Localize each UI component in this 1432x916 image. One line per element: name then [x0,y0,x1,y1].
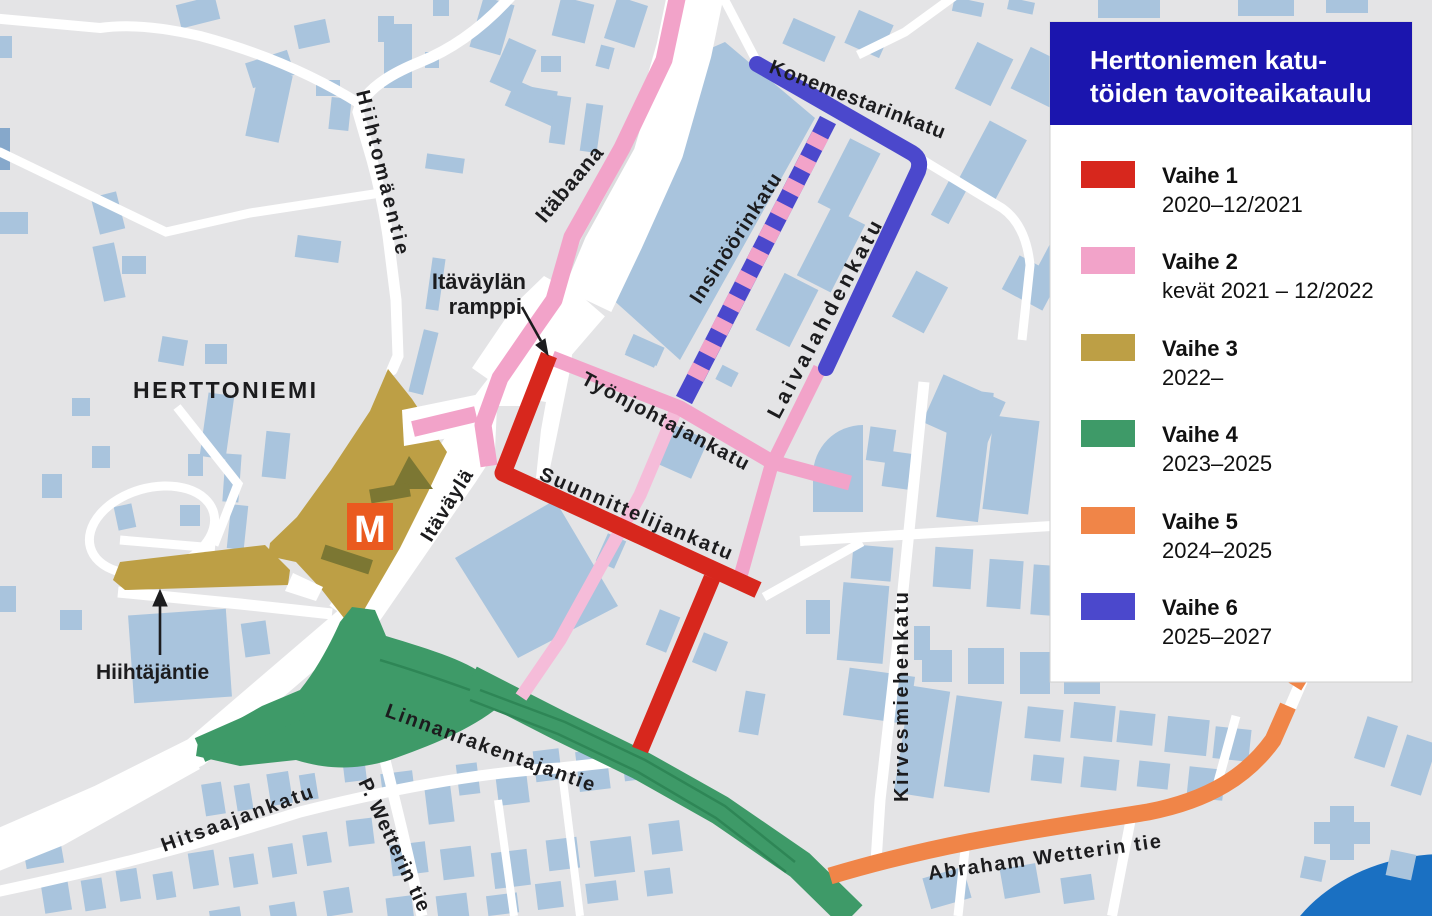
svg-text:Herttoniemen katu-: Herttoniemen katu- [1090,45,1327,75]
svg-text:kevät 2021 – 12/2022: kevät 2021 – 12/2022 [1162,278,1374,303]
svg-text:2023–2025: 2023–2025 [1162,451,1272,476]
svg-text:Vaihe 4: Vaihe 4 [1162,422,1239,447]
svg-text:Kirvesmiehenkatu: Kirvesmiehenkatu [891,590,913,802]
svg-text:Hiihtäjäntie: Hiihtäjäntie [96,661,209,684]
svg-text:töiden tavoiteaikataulu: töiden tavoiteaikataulu [1090,78,1372,108]
svg-text:Vaihe 2: Vaihe 2 [1162,249,1238,274]
svg-text:HERTTONIEMI: HERTTONIEMI [133,377,319,403]
svg-text:M: M [354,509,386,551]
svg-text:Vaihe 3: Vaihe 3 [1162,336,1238,361]
svg-text:Vaihe 6: Vaihe 6 [1162,595,1238,620]
svg-text:2020–12/2021: 2020–12/2021 [1162,192,1303,217]
svg-text:ramppi: ramppi [449,294,522,319]
svg-text:2024–2025: 2024–2025 [1162,538,1272,563]
svg-text:2022–: 2022– [1162,365,1224,390]
svg-text:Vaihe 1: Vaihe 1 [1162,163,1238,188]
svg-text:Vaihe 5: Vaihe 5 [1162,509,1238,534]
svg-text:2025–2027: 2025–2027 [1162,624,1272,649]
svg-text:Itäväylän: Itäväylän [432,269,526,294]
